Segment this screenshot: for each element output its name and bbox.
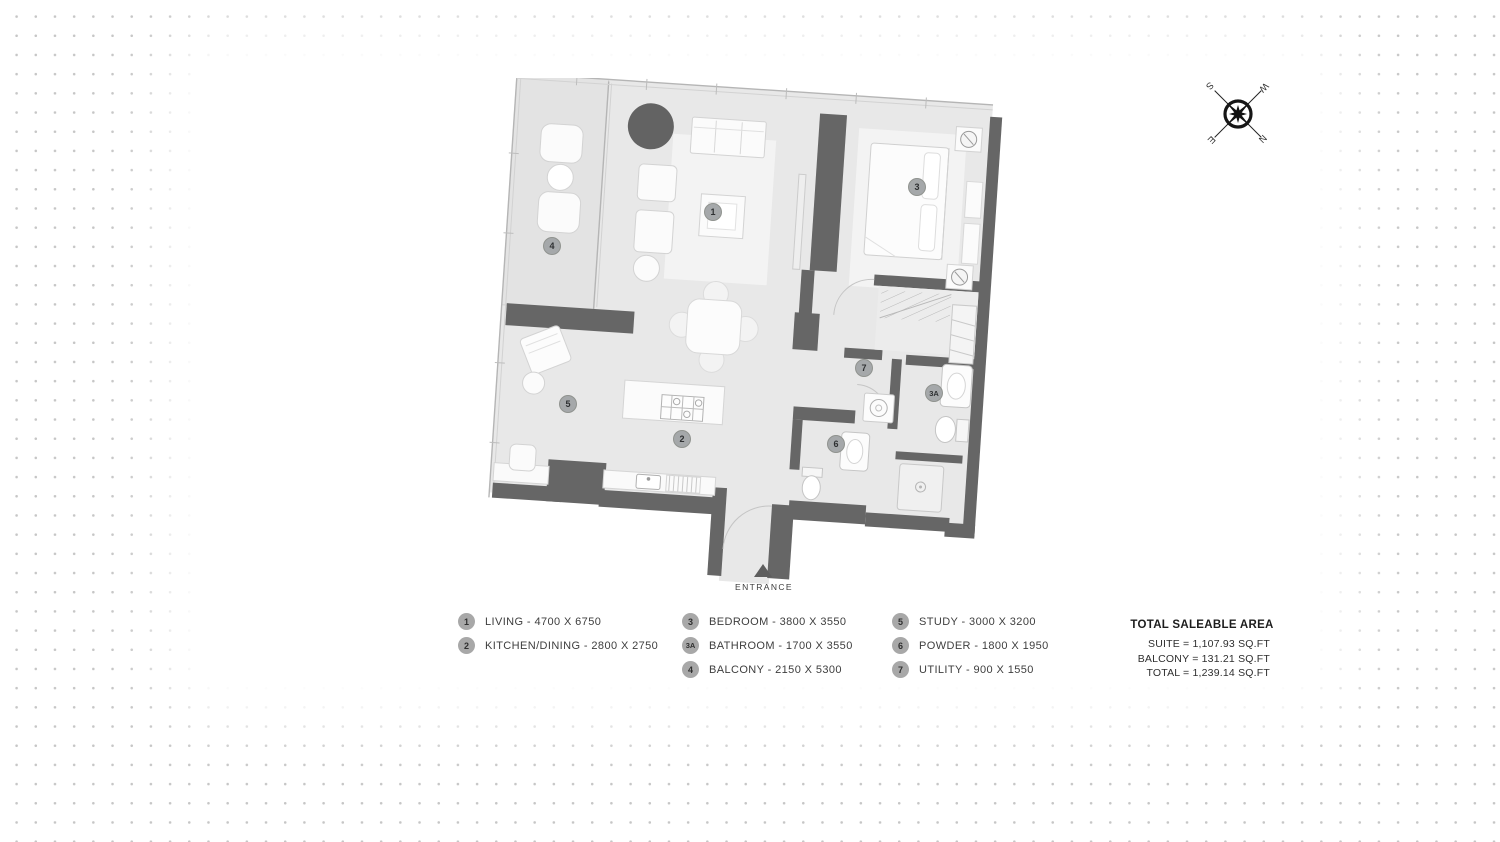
legend-label: LIVING - 4700 X 6750 xyxy=(485,616,601,628)
washing-machine-icon xyxy=(863,393,895,423)
legend-item-bedroom: 3 BEDROOM - 3800 X 3550 xyxy=(682,613,853,630)
legend-badge: 6 xyxy=(892,637,909,654)
legend-badge: 1 xyxy=(458,613,475,630)
room-marker-utility: 7 xyxy=(855,359,873,377)
legend-column-1: 1 LIVING - 4700 X 6750 2 KITCHEN/DINING … xyxy=(458,613,658,661)
legend-item-utility: 7 UTILITY - 900 X 1550 xyxy=(892,661,1049,678)
legend-badge: 4 xyxy=(682,661,699,678)
legend-label: STUDY - 3000 X 3200 xyxy=(919,616,1036,628)
legend-label: BATHROOM - 1700 X 3550 xyxy=(709,640,853,652)
room-marker-kitchen: 2 xyxy=(673,430,691,448)
room-marker-living: 1 xyxy=(704,203,722,221)
room-marker-balcony: 4 xyxy=(543,237,561,255)
room-marker-bedroom: 3 xyxy=(908,178,926,196)
kitchen-sink xyxy=(636,474,661,490)
legend-label: BEDROOM - 3800 X 3550 xyxy=(709,616,846,628)
area-summary-title: TOTAL SALEABLE AREA xyxy=(1128,619,1276,631)
compass-w: W xyxy=(1256,80,1270,94)
legend-item-bathroom: 3A BATHROOM - 1700 X 3550 xyxy=(682,637,853,654)
area-row-suite: SUITE = 1,107.93 SQ.FT xyxy=(1128,637,1276,652)
legend-badge: 2 xyxy=(458,637,475,654)
legend-item-kitchen-dining: 2 KITCHEN/DINING - 2800 X 2750 xyxy=(458,637,658,654)
legend-badge: 3 xyxy=(682,613,699,630)
legend-column-2: 3 BEDROOM - 3800 X 3550 3A BATHROOM - 17… xyxy=(682,613,853,685)
floor-plan xyxy=(480,78,1020,618)
room-marker-study: 5 xyxy=(559,395,577,413)
legend-label: BALCONY - 2150 X 5300 xyxy=(709,664,842,676)
legend-label: KITCHEN/DINING - 2800 X 2750 xyxy=(485,640,658,652)
legend-item-powder: 6 POWDER - 1800 X 1950 xyxy=(892,637,1049,654)
legend-label: POWDER - 1800 X 1950 xyxy=(919,640,1049,652)
room-marker-bathroom: 3A xyxy=(925,384,943,402)
legend-item-living: 1 LIVING - 4700 X 6750 xyxy=(458,613,658,630)
compass-e: E xyxy=(1205,133,1217,145)
compass-icon: N E S W xyxy=(1193,69,1283,159)
legend-column-3: 5 STUDY - 3000 X 3200 6 POWDER - 1800 X … xyxy=(892,613,1049,685)
room-marker-powder: 6 xyxy=(827,435,845,453)
legend-badge: 5 xyxy=(892,613,909,630)
legend-badge: 3A xyxy=(682,637,699,654)
area-row-total: TOTAL = 1,239.14 SQ.FT xyxy=(1128,666,1276,681)
entrance-arrow-icon xyxy=(754,564,772,577)
legend-item-study: 5 STUDY - 3000 X 3200 xyxy=(892,613,1049,630)
area-row-balcony: BALCONY = 131.21 SQ.FT xyxy=(1128,652,1276,667)
entrance-label: ENTRANCE xyxy=(718,582,810,592)
legend-item-balcony: 4 BALCONY - 2150 X 5300 xyxy=(682,661,853,678)
legend-badge: 7 xyxy=(892,661,909,678)
utility-room xyxy=(863,393,895,423)
compass-s: S xyxy=(1203,79,1215,91)
legend-label: UTILITY - 900 X 1550 xyxy=(919,664,1034,676)
area-summary: TOTAL SALEABLE AREA SUITE = 1,107.93 SQ.… xyxy=(1128,619,1276,681)
